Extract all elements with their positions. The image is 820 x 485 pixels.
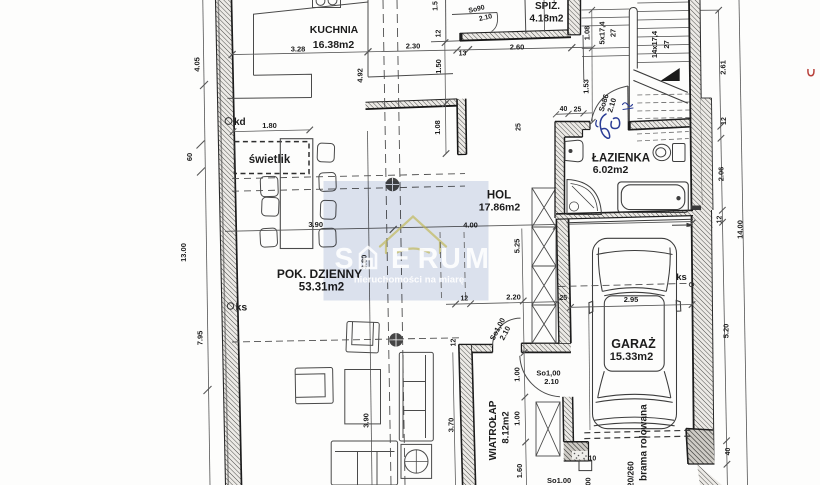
svg-text:R: R [418,243,439,275]
svg-text:13.00: 13.00 [179,243,188,262]
svg-text:14x17,4: 14x17,4 [650,30,659,58]
svg-text:2.60: 2.60 [510,43,525,52]
svg-text:3.28: 3.28 [291,44,306,53]
svg-text:12: 12 [451,339,458,347]
svg-text:7.95: 7.95 [196,331,205,346]
svg-text:10: 10 [589,456,597,463]
svg-text:4.92: 4.92 [356,68,365,83]
svg-text:brama rolowana: brama rolowana [639,404,650,481]
svg-text:27: 27 [662,40,671,48]
svg-text:40: 40 [560,106,568,113]
svg-text:5.25: 5.25 [513,239,522,254]
svg-text:3.90: 3.90 [308,220,323,229]
svg-text:ks: ks [676,272,687,283]
svg-text:60: 60 [185,153,194,161]
svg-text:E: E [391,243,410,275]
svg-text:40: 40 [725,448,732,456]
svg-text:GARAŻ: GARAŻ [611,336,656,351]
svg-text:13: 13 [459,51,467,58]
svg-text:3.70: 3.70 [447,418,456,433]
svg-text:1.00: 1.00 [513,367,522,382]
svg-text:2.30: 2.30 [406,42,421,51]
svg-text:12: 12 [717,216,724,224]
svg-text:1.53: 1.53 [582,79,591,94]
svg-text:nieruchomości na miarę: nieruchomości na miarę [354,275,464,286]
svg-text:6.02m2: 6.02m2 [593,164,629,176]
svg-text:12: 12 [721,117,728,125]
svg-text:4.18m2: 4.18m2 [530,14,564,25]
svg-text:świetlik: świetlik [249,154,291,166]
svg-text:M: M [465,243,489,275]
svg-text:25: 25 [559,295,567,302]
svg-text:1.00: 1.00 [513,411,522,426]
svg-text:kd: kd [234,117,246,128]
svg-text:So1.00: So1.00 [547,476,571,485]
svg-text:220/260: 220/260 [626,461,636,485]
svg-text:1.5: 1.5 [433,1,440,11]
svg-text:2.06: 2.06 [717,167,726,182]
svg-text:U: U [440,243,461,275]
svg-text:ks: ks [236,302,248,314]
svg-text:1.50: 1.50 [434,59,443,74]
svg-text:WIATROŁAP: WIATROŁAP [488,400,499,460]
svg-text:1.00: 1.00 [584,477,593,485]
svg-text:SPIŻ.: SPIŻ. [535,0,560,12]
svg-text:16.38m2: 16.38m2 [313,39,355,51]
svg-text:ŁAZIENKA: ŁAZIENKA [592,153,650,165]
svg-text:1.60: 1.60 [515,464,524,479]
svg-text:2.20: 2.20 [506,293,521,302]
svg-text:1.08: 1.08 [433,120,442,135]
svg-text:12: 12 [436,30,443,38]
svg-text:25: 25 [516,123,523,131]
svg-text:3.90: 3.90 [362,413,371,428]
svg-text:5.20: 5.20 [722,324,731,339]
svg-text:1.08: 1.08 [583,26,592,41]
svg-text:8.12m2: 8.12m2 [501,411,512,443]
svg-text:5x17,4: 5x17,4 [598,21,607,45]
svg-text:14.00: 14.00 [736,220,745,239]
svg-text:4.05: 4.05 [193,57,202,72]
svg-text:KUCHNIA: KUCHNIA [310,24,359,36]
svg-text:15.33m2: 15.33m2 [610,351,653,363]
svg-text:HOL: HOL [487,190,511,202]
svg-text:2.61: 2.61 [719,60,728,75]
svg-text:25: 25 [574,106,582,113]
svg-text:2.95: 2.95 [624,295,639,304]
svg-text:2.10: 2.10 [544,377,559,386]
svg-text:S: S [334,243,353,275]
svg-text:27: 27 [609,29,618,37]
svg-text:1.80: 1.80 [262,121,277,130]
svg-text:12: 12 [460,296,468,303]
